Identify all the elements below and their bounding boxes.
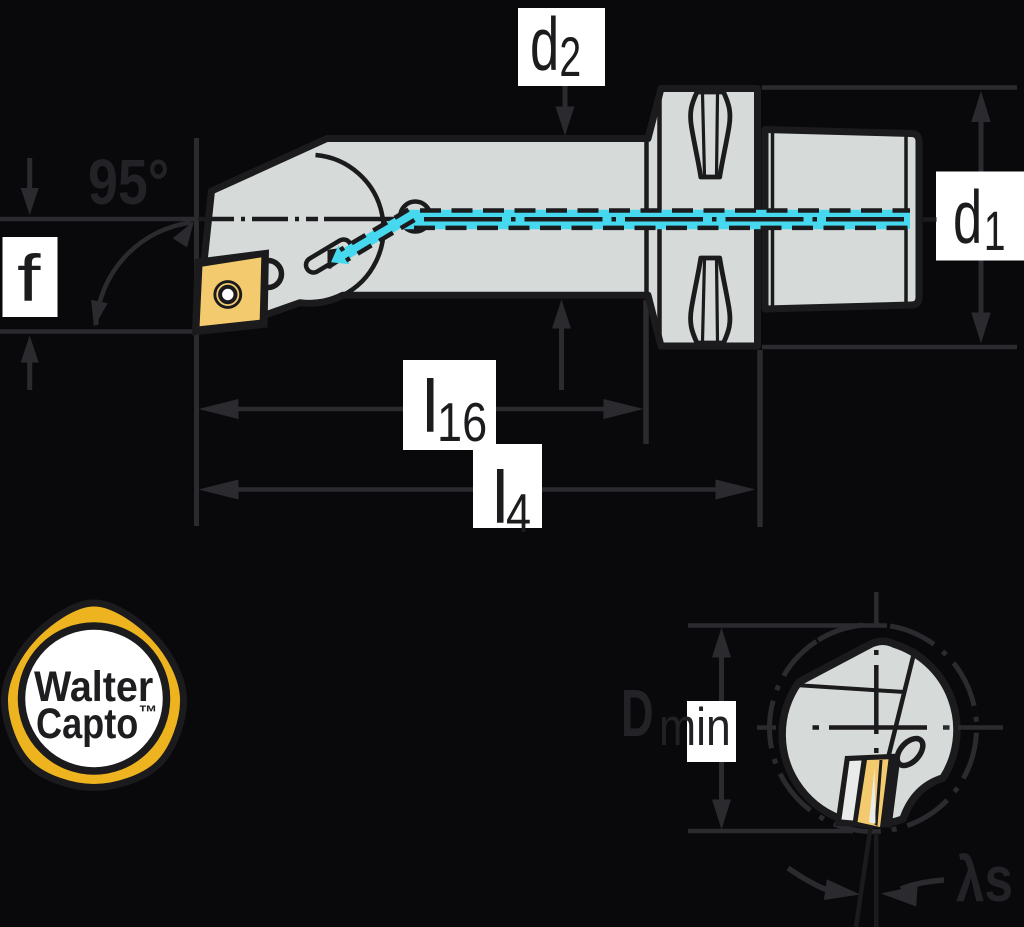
svg-text:™: ™ — [139, 703, 158, 724]
svg-text:95°: 95° — [88, 146, 169, 219]
svg-text:Capto: Capto — [36, 700, 138, 748]
svg-text:d: d — [530, 2, 559, 87]
svg-text:d: d — [953, 175, 982, 260]
svg-text:2: 2 — [559, 26, 581, 89]
svg-text:D: D — [621, 676, 654, 751]
svg-text:1: 1 — [984, 200, 1006, 263]
svg-text:min: min — [659, 698, 731, 756]
svg-text:f: f — [17, 242, 42, 316]
svg-text:l: l — [422, 365, 438, 448]
svg-text:16: 16 — [437, 391, 487, 453]
svg-text:λs: λs — [956, 845, 1013, 916]
svg-text:4: 4 — [506, 482, 531, 544]
